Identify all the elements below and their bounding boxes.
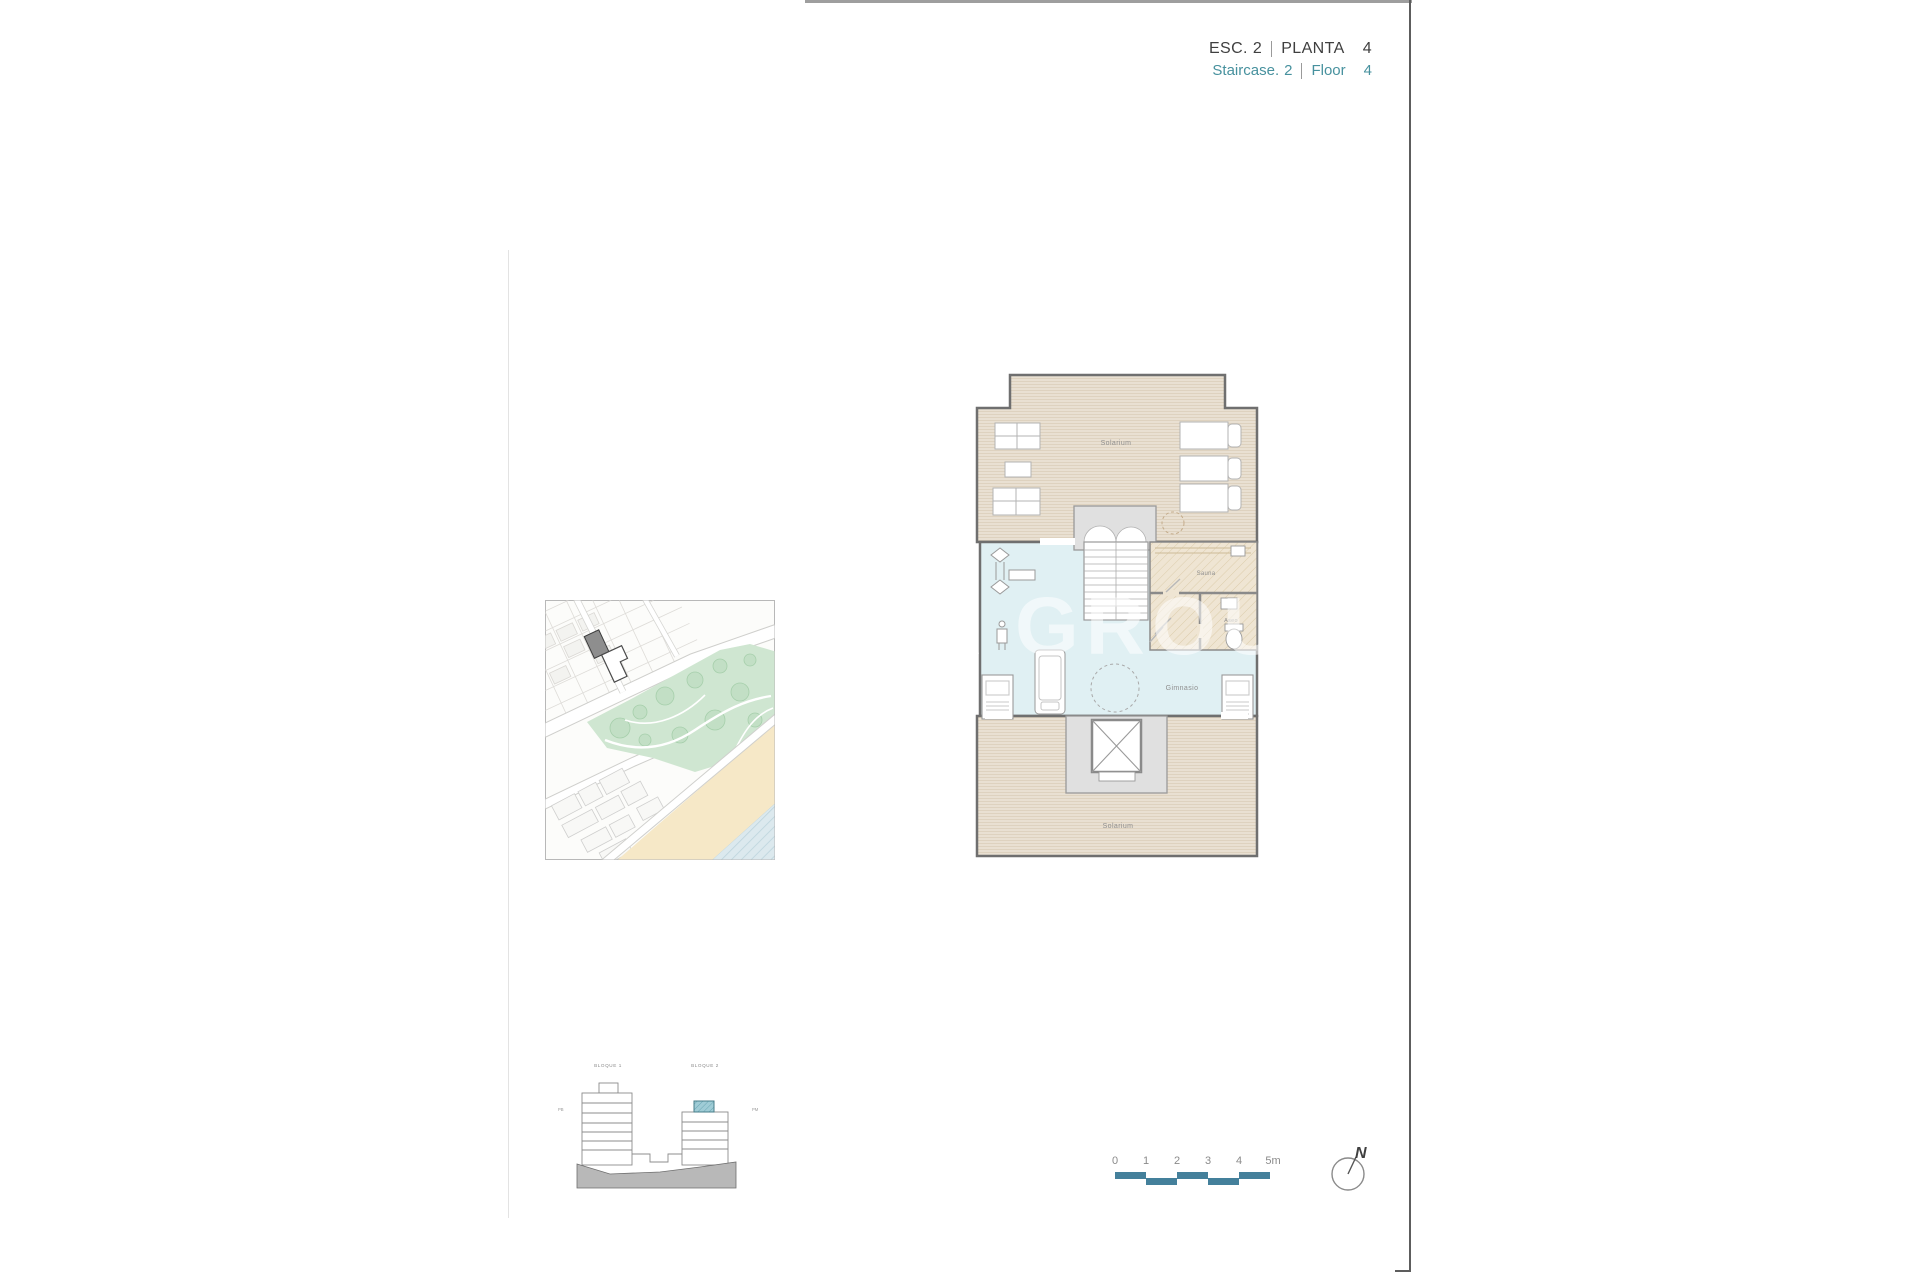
ground-terrain xyxy=(577,1162,736,1188)
scale-bar: 0 1 2 3 4 5m xyxy=(1113,1155,1283,1189)
scale-tick-3: 3 xyxy=(1205,1155,1211,1167)
gym-label: Gimnasio xyxy=(1166,685,1199,692)
floor-number: 4 xyxy=(1364,62,1372,79)
block2-label: BLOQUE 2 xyxy=(691,1063,719,1068)
scale-tick-2: 2 xyxy=(1174,1155,1180,1167)
site-location-map xyxy=(545,600,775,860)
solarium-bottom-label: Solarium xyxy=(1103,823,1134,830)
right-ref-label: PM xyxy=(752,1107,759,1112)
sun-loungers-right xyxy=(1180,422,1241,512)
door-gap-top xyxy=(1040,538,1075,545)
bottom-corner-tick xyxy=(1395,1270,1411,1272)
scale-segment xyxy=(1239,1172,1270,1179)
toilet-label: Aseo xyxy=(1224,618,1238,624)
floor-label: Floor xyxy=(1311,62,1345,79)
title-block: ESC. 2 PLANTA 4 Staircase. 2 Floor 4 xyxy=(1060,40,1372,79)
elevator-core xyxy=(1066,716,1167,793)
title-divider xyxy=(1271,41,1272,57)
floor-plan: Solarium Sauna Aseo Gimnasio Solarium xyxy=(973,366,1263,862)
scale-segment xyxy=(1208,1178,1239,1185)
scale-segment xyxy=(1177,1172,1208,1179)
esc-planta-title: ESC. 2 PLANTA 4 xyxy=(1060,40,1372,58)
sauna-wc-block xyxy=(1150,542,1257,650)
scale-segment xyxy=(1115,1172,1146,1179)
sauna-label: Sauna xyxy=(1197,571,1216,577)
staircase xyxy=(1084,542,1148,620)
staircase-label: Staircase. xyxy=(1212,62,1279,79)
north-label: N xyxy=(1355,1145,1367,1162)
scale-segment xyxy=(1146,1178,1177,1185)
planta-label: PLANTA xyxy=(1281,40,1344,58)
staircase-floor-subtitle: Staircase. 2 Floor 4 xyxy=(1060,62,1372,79)
planta-number: 4 xyxy=(1363,40,1372,58)
subtitle-divider xyxy=(1301,63,1302,79)
current-floor-highlight xyxy=(694,1101,714,1112)
block1-label: BLOQUE 1 xyxy=(594,1063,622,1068)
scale-tick-5: 5m xyxy=(1265,1155,1280,1167)
scale-tick-4: 4 xyxy=(1236,1155,1242,1167)
block2-building xyxy=(682,1112,728,1165)
left-ref-label: PB xyxy=(558,1107,564,1112)
podium-outline xyxy=(632,1154,682,1162)
scale-tick-0: 0 xyxy=(1112,1155,1118,1167)
building-elevation-diagram: BLOQUE 1 BLOQUE 2 PB PM xyxy=(550,1050,770,1200)
esc-number: 2 xyxy=(1253,40,1262,58)
right-border-line xyxy=(1409,0,1411,1272)
staircase-number: 2 xyxy=(1284,62,1292,79)
solarium-top-label: Solarium xyxy=(1101,440,1132,447)
door-gap-left xyxy=(985,712,1012,719)
door-gap-right xyxy=(1221,712,1248,719)
esc-label: ESC. xyxy=(1209,40,1248,58)
north-compass: N xyxy=(1326,1136,1382,1198)
scale-tick-1: 1 xyxy=(1143,1155,1149,1167)
drawing-page: ESC. 2 PLANTA 4 Staircase. 2 Floor 4 xyxy=(0,0,1920,1280)
top-border-line xyxy=(805,0,1412,3)
left-divider-line xyxy=(508,250,509,1218)
block1-building xyxy=(582,1083,632,1165)
